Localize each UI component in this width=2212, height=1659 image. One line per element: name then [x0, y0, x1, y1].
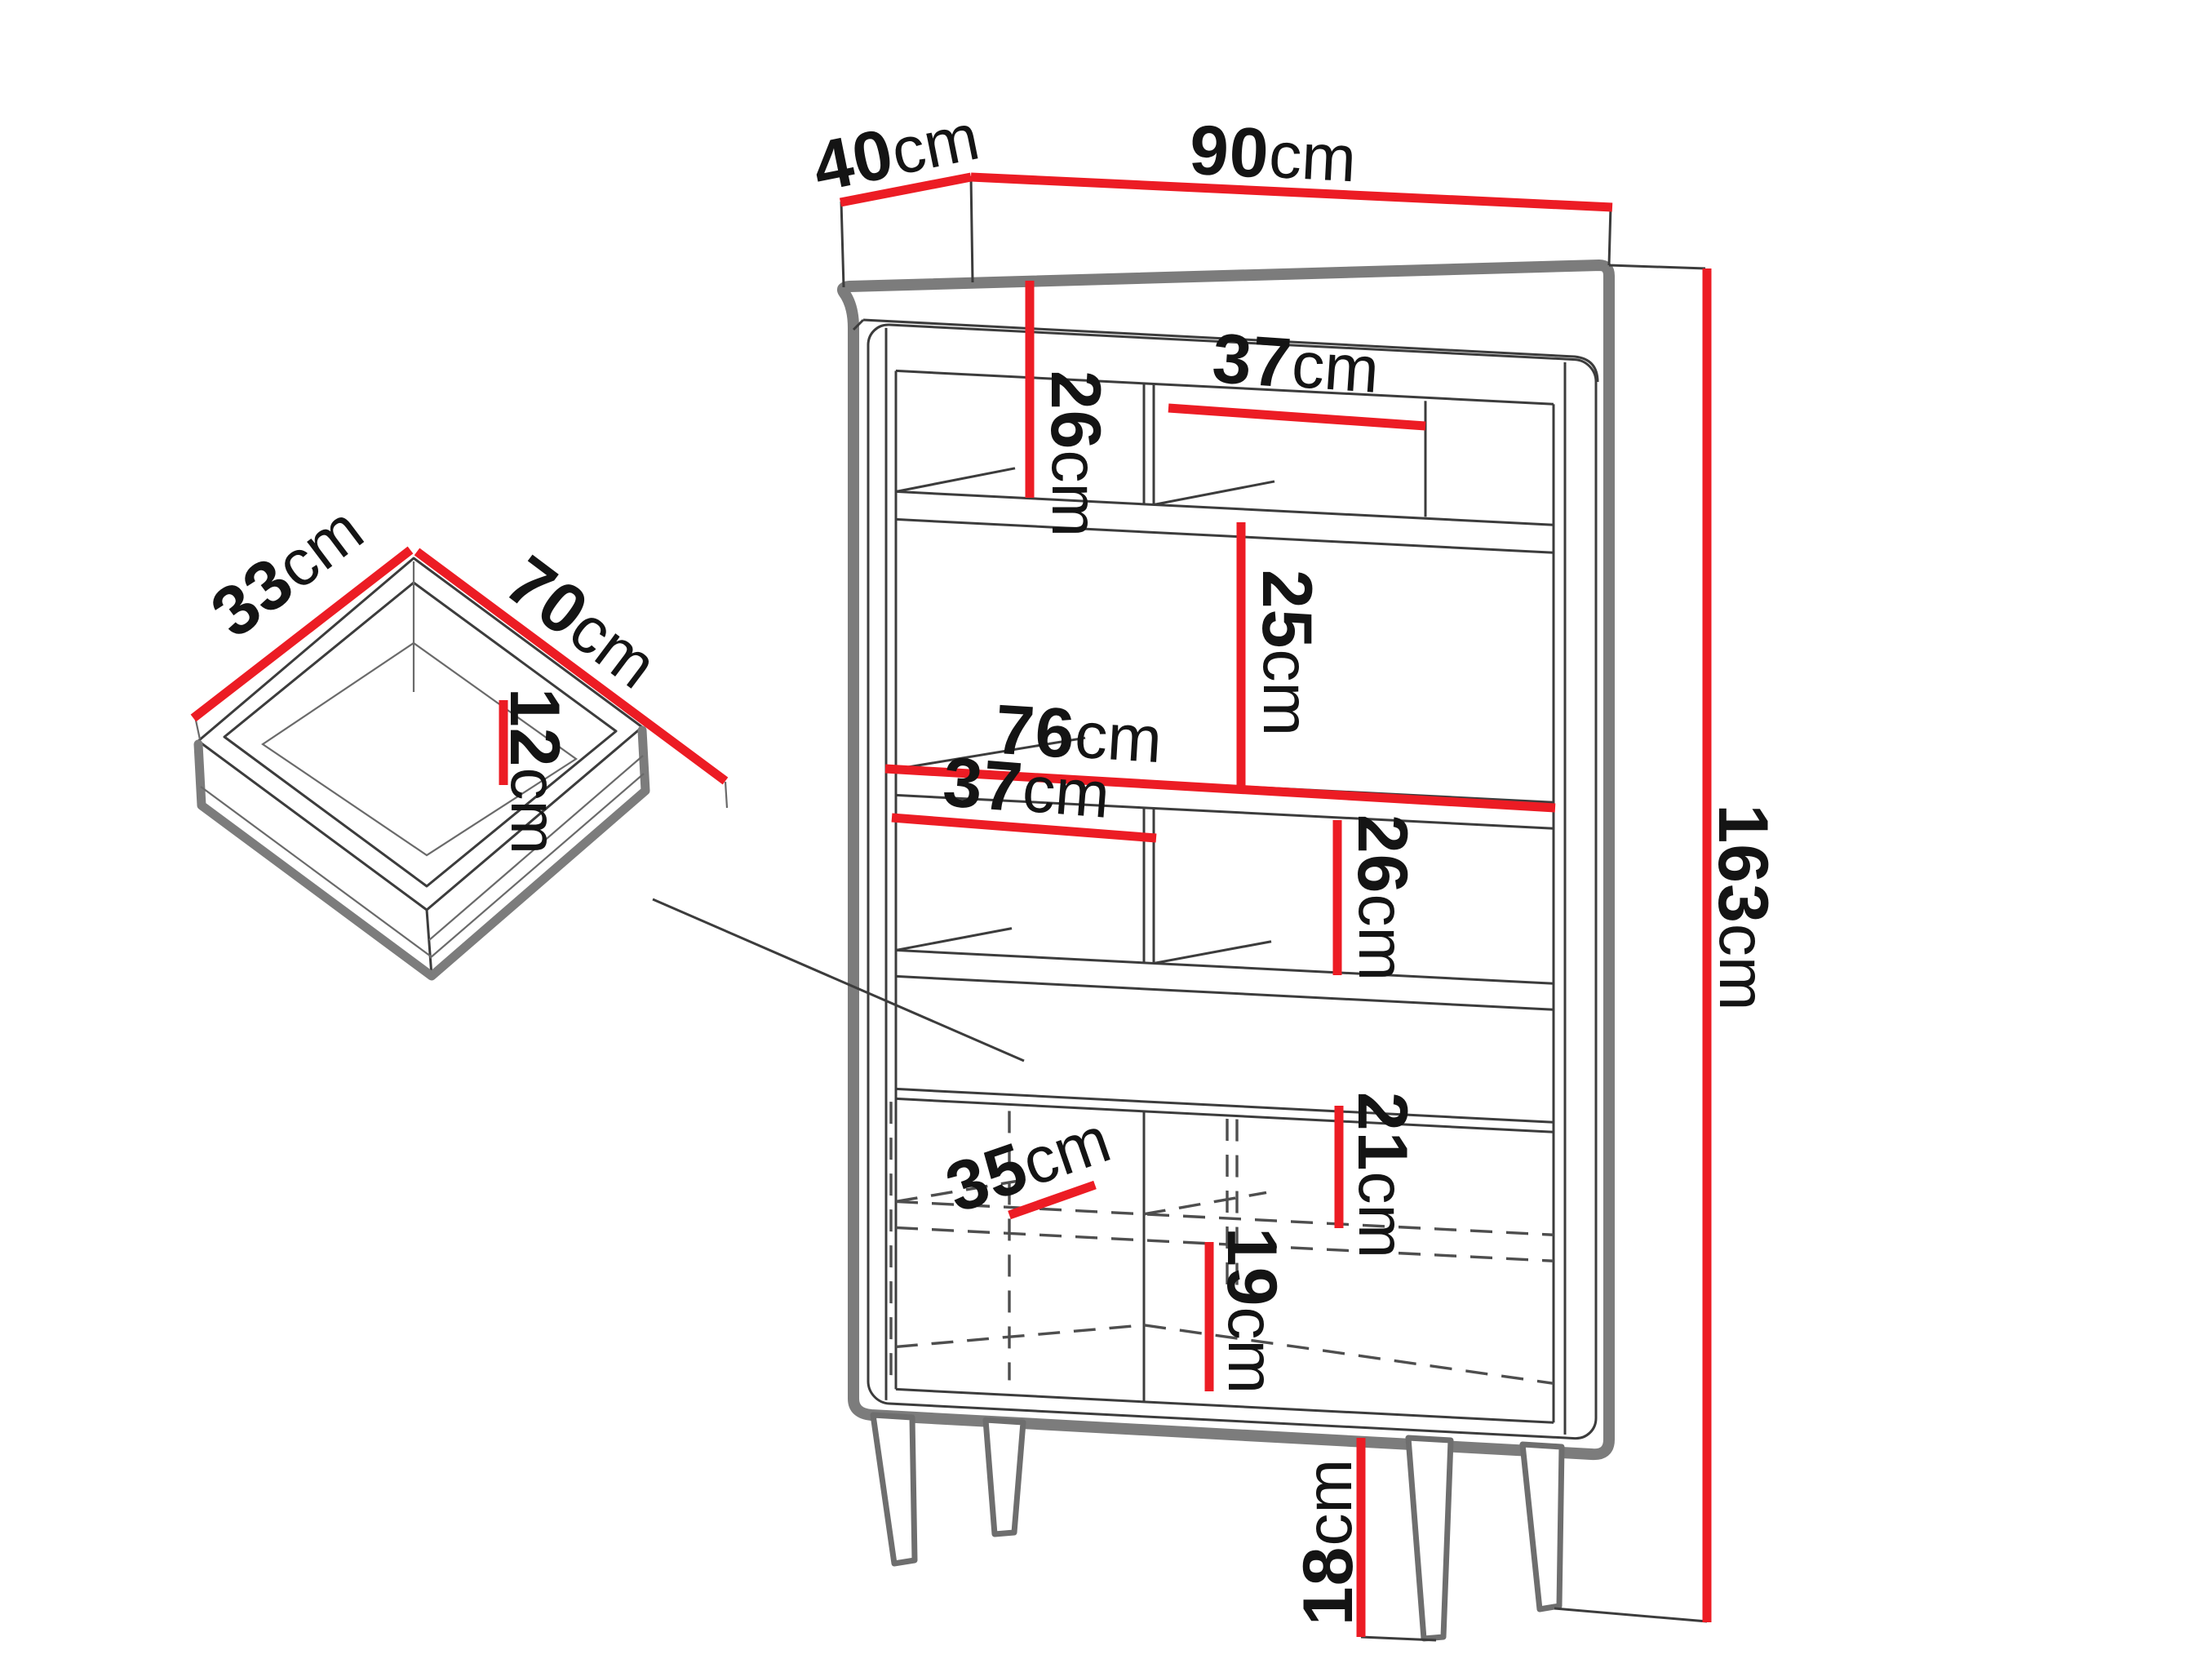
- row3-divider: [1144, 808, 1154, 964]
- diagram-canvas: 40cm 90cm 163cm 26cm 37cm 25cm 76cm 37cm…: [0, 0, 2212, 1659]
- label-lower-right-cell-height: 26cm: [1343, 814, 1421, 981]
- dim-top-right-cell-width-line: [1168, 408, 1425, 426]
- label-lower-left-cell-width: 37cm: [940, 743, 1112, 834]
- shelf-3: [896, 922, 1554, 1009]
- label-depth: 40cm: [806, 97, 985, 207]
- label-lower-door-height: 19cm: [1212, 1227, 1291, 1394]
- label-drawer-height: 12cm: [495, 688, 574, 854]
- shelf-1: [896, 462, 1554, 552]
- label-drawer-depth: 33cm: [197, 490, 378, 653]
- label-height: 163cm: [1704, 804, 1782, 1010]
- leg-back-right: [1408, 1438, 1451, 1639]
- furniture-diagram: 40cm 90cm 163cm 26cm 37cm 25cm 76cm 37cm…: [0, 0, 2212, 1659]
- label-middle-cell-height: 25cm: [1248, 570, 1326, 736]
- label-top-right-cell-width: 37cm: [1210, 319, 1382, 409]
- label-upper-door-height: 21cm: [1343, 1092, 1421, 1258]
- label-leg-height: 18cm: [1289, 1459, 1368, 1626]
- label-top-left-cell-height: 26cm: [1036, 370, 1115, 537]
- leg-front-left: [873, 1415, 915, 1564]
- leg-back-left: [986, 1420, 1023, 1534]
- label-width: 90cm: [1187, 111, 1358, 198]
- leg-front-right: [1523, 1444, 1562, 1609]
